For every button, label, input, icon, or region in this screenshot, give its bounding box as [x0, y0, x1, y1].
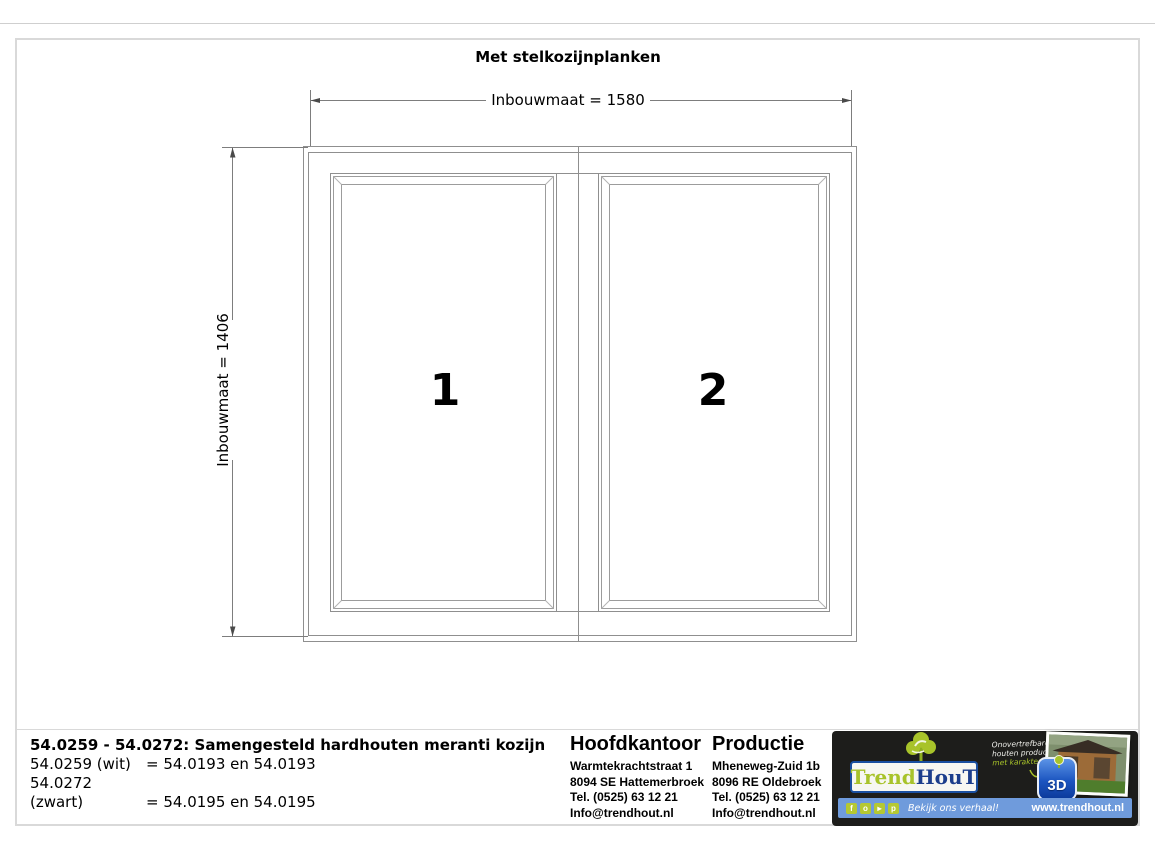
page: Met stelkozijnplanken Inbouwmaat = 1580 … [0, 0, 1155, 866]
brand-bottom-bar: f o ▸ p Bekijk ons verhaal! www.trendhou… [838, 798, 1132, 818]
product-title: 54.0259 - 54.0272: Samengesteld hardhout… [30, 736, 545, 755]
production-heading: Productie [712, 732, 821, 756]
dimension-arrows [230, 98, 852, 637]
product-value: = 54.0193 en 54.0193 [146, 755, 316, 773]
dimension-lines [222, 90, 852, 637]
tree-icon [900, 732, 942, 762]
email-line: Info@trendhout.nl [570, 806, 704, 822]
head-office-heading: Hoofdkantoor [570, 732, 704, 756]
drawing-title: Met stelkozijnplanken [475, 48, 661, 66]
email-line: Info@trendhout.nl [712, 806, 821, 822]
frame-outline [304, 147, 857, 642]
phone-line: Tel. (0525) 63 12 21 [570, 790, 704, 806]
width-dimension-label: Inbouwmaat = 1580 [491, 91, 645, 109]
address-line: 8094 SE Hattemerbroek [570, 775, 704, 791]
height-dimension-label: Inbouwmaat = 1406 [214, 313, 232, 467]
address-line: Mheneweg-Zuid 1b [712, 759, 821, 775]
youtube-icon: ▸ [874, 803, 885, 814]
panel-1-number: 1 [430, 365, 461, 416]
sash-corner-joints [334, 177, 827, 609]
product-row: 54.0259 (wit)= 54.0193 en 54.0193 [30, 755, 545, 774]
address-line: 8096 RE Oldebroek [712, 775, 821, 791]
badge-3d-label: 3D [1047, 777, 1066, 794]
product-code: 54.0259 (wit) [30, 755, 146, 774]
product-value: = 54.0195 en 54.0195 [146, 793, 316, 811]
badge-tree-icon [1051, 755, 1067, 769]
logo-text-hout: HouT [916, 765, 978, 789]
facebook-icon: f [846, 803, 857, 814]
product-description: 54.0259 - 54.0272: Samengesteld hardhout… [30, 736, 545, 812]
3d-viewer-badge: 3D [1037, 757, 1077, 801]
product-code: 54.0272 (zwart) [30, 774, 146, 812]
brand-panel: TrendHouT Onovertrefbare houten producte… [832, 731, 1138, 826]
sash-outlines [334, 177, 827, 609]
head-office-block: Hoofdkantoor Warmtekrachtstraat 1 8094 S… [570, 732, 704, 821]
pinterest-icon: p [888, 803, 899, 814]
product-row: 54.0272 (zwart)= 54.0195 en 54.0195 [30, 774, 545, 812]
production-block: Productie Mheneweg-Zuid 1b 8096 RE Oldeb… [712, 732, 821, 821]
instagram-icon: o [860, 803, 871, 814]
trendhout-logo: TrendHouT [850, 761, 978, 793]
address-line: Warmtekrachtstraat 1 [570, 759, 704, 775]
phone-line: Tel. (0525) 63 12 21 [712, 790, 821, 806]
panel-2-number: 2 [698, 365, 729, 416]
website-url: www.trendhout.nl [1032, 802, 1124, 814]
social-cta-text: Bekijk ons verhaal! [908, 803, 1029, 814]
logo-text-trend: Trend [851, 765, 916, 789]
